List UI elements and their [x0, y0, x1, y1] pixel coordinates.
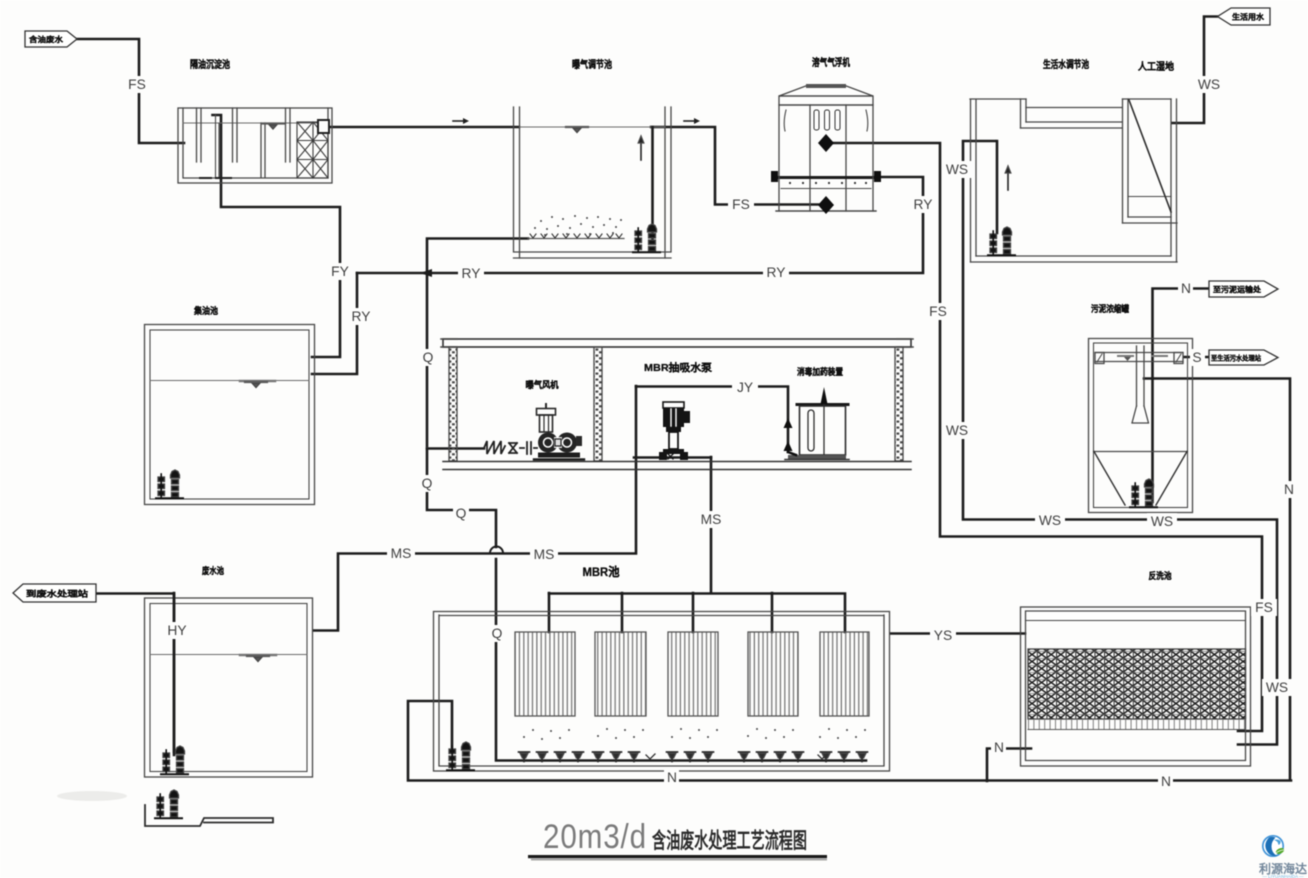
svg-text:RY: RY	[352, 309, 371, 324]
svg-text:N: N	[1284, 482, 1294, 497]
svg-text:MBR抽吸水泵: MBR抽吸水泵	[644, 361, 713, 374]
svg-text:WS: WS	[1039, 513, 1061, 528]
svg-text:Q: Q	[422, 476, 433, 491]
svg-text:FS: FS	[1255, 600, 1273, 615]
svg-text:MS: MS	[701, 512, 722, 527]
svg-text:WS: WS	[946, 162, 968, 177]
svg-text:集油池: 集油池	[193, 305, 218, 316]
svg-text:WS: WS	[1198, 77, 1220, 92]
svg-text:FS: FS	[128, 77, 146, 92]
svg-text:污泥浓缩罐: 污泥浓缩罐	[1091, 303, 1129, 314]
svg-text:MBR池: MBR池	[583, 564, 620, 579]
svg-text:N: N	[1161, 774, 1171, 789]
svg-text:S: S	[1192, 350, 1201, 365]
svg-text:含油废水: 含油废水	[29, 34, 64, 44]
svg-text:N: N	[667, 770, 677, 785]
svg-text:MS: MS	[391, 546, 412, 561]
svg-text:WS: WS	[1266, 680, 1288, 695]
svg-text:消毒加药装置: 消毒加药装置	[797, 366, 843, 377]
svg-text:RY: RY	[767, 265, 786, 280]
svg-text:曝气调节池: 曝气调节池	[572, 58, 612, 71]
svg-text:Q: Q	[423, 350, 434, 365]
svg-text:到废水处理站: 到废水处理站	[26, 589, 88, 599]
svg-text:FS: FS	[929, 304, 947, 319]
svg-text:RY: RY	[914, 197, 933, 212]
svg-text:生活水调节池: 生活水调节池	[1043, 58, 1089, 71]
svg-text:20m3/d: 20m3/d	[543, 818, 647, 856]
svg-text:溶气气浮机: 溶气气浮机	[812, 56, 850, 69]
svg-text:生活用水: 生活用水	[1232, 12, 1265, 22]
svg-text:隔油沉淀池: 隔油沉淀池	[190, 58, 230, 71]
svg-text:废水池: 废水池	[202, 565, 224, 576]
svg-text:WS: WS	[946, 423, 968, 438]
svg-text:人工湿地: 人工湿地	[1138, 60, 1174, 73]
svg-text:至污泥运输处: 至污泥运输处	[1213, 284, 1262, 294]
svg-text:Q: Q	[456, 506, 467, 521]
svg-text:含油废水处理工艺流程图: 含油废水处理工艺流程图	[652, 828, 807, 853]
svg-text:FS: FS	[732, 197, 750, 212]
svg-text:N: N	[994, 740, 1004, 755]
svg-text:FY: FY	[331, 264, 349, 279]
svg-text:Q: Q	[492, 626, 503, 641]
svg-text:MS: MS	[534, 547, 555, 562]
svg-text:WS: WS	[1151, 514, 1173, 529]
svg-text:— LIYUANHAIDA —: — LIYUANHAIDA —	[1262, 874, 1304, 878]
svg-text:YS: YS	[934, 628, 952, 643]
svg-text:至生活污水处理站: 至生活污水处理站	[1211, 354, 1261, 363]
svg-text:JY: JY	[737, 380, 753, 395]
svg-text:N: N	[1181, 281, 1191, 296]
svg-text:RY: RY	[462, 266, 481, 281]
svg-text:HY: HY	[167, 623, 186, 638]
svg-text:曝气风机: 曝气风机	[526, 379, 559, 390]
svg-text:反洗池: 反洗池	[1149, 570, 1172, 581]
